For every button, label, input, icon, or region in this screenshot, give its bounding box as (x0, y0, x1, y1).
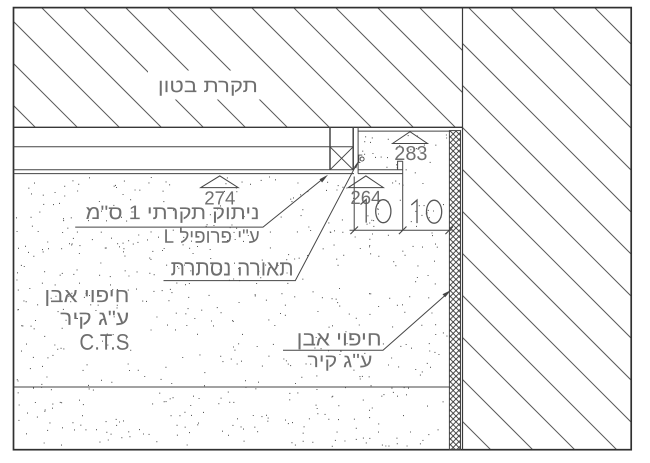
svg-text:C.T.S: C.T.S (79, 330, 129, 355)
svg-text:274: 274 (204, 188, 236, 209)
svg-text:תאורה נסתרת: תאורה נסתרת (171, 255, 294, 280)
svg-text:283: 283 (394, 143, 427, 165)
svg-text:ע"ג קיר: ע"ג קיר (60, 307, 129, 330)
svg-text:חיפוי אבן: חיפוי אבן (44, 285, 129, 307)
svg-text:ע"ג קיר: ע"ג קיר (307, 350, 372, 372)
svg-text:תקרת בטון: תקרת בטון (158, 76, 258, 97)
svg-text:ע"י פרופיל L: ע"י פרופיל L (164, 226, 260, 248)
svg-text:חיפוי אבן: חיפוי אבן (297, 327, 382, 350)
